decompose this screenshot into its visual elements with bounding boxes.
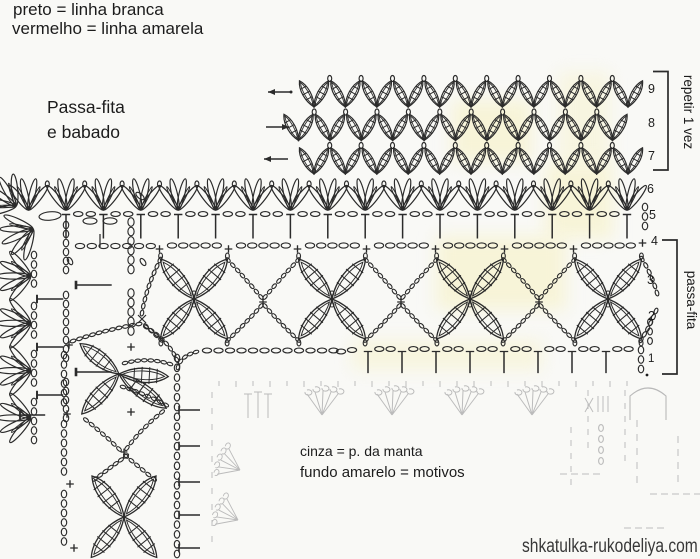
svg-text:4: 4: [651, 234, 658, 248]
svg-text:passa-fita: passa-fita: [684, 271, 699, 330]
svg-text:5: 5: [649, 208, 656, 222]
svg-text:6: 6: [647, 182, 654, 196]
svg-text:3: 3: [647, 273, 654, 287]
svg-text:1: 1: [648, 353, 654, 365]
svg-text:8: 8: [648, 116, 655, 130]
svg-text:2: 2: [648, 309, 655, 323]
svg-text:repetir 1 vez: repetir 1 vez: [681, 75, 696, 150]
svg-text:7: 7: [648, 149, 655, 163]
svg-text:9: 9: [648, 82, 655, 96]
